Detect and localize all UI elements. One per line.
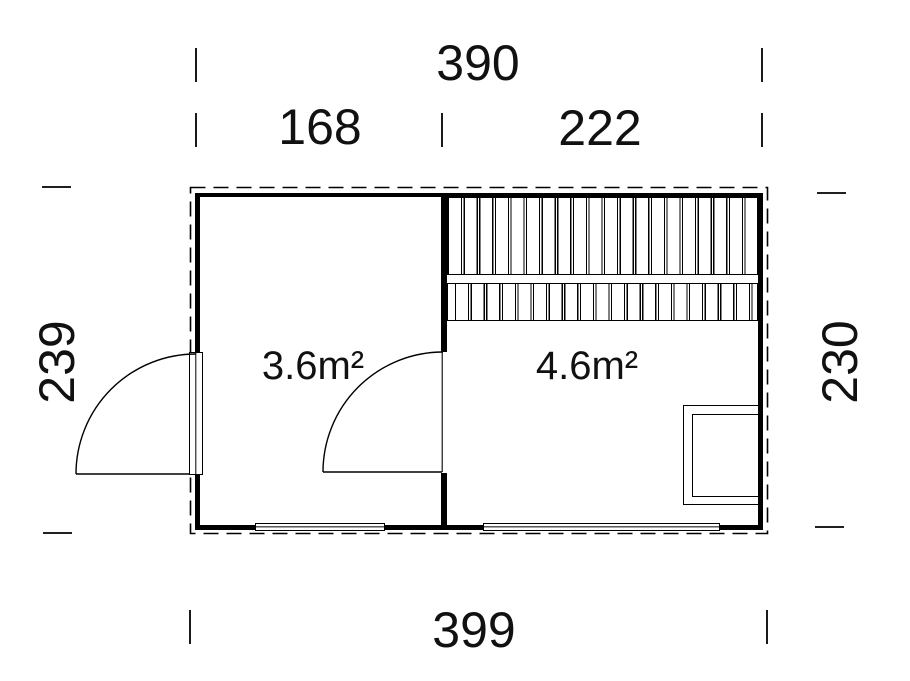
dim-side-right: 230 [815,320,865,403]
dim-top-total: 390 [436,38,519,88]
dim-bottom-total: 399 [432,605,515,655]
annotations-layer [0,0,910,681]
exterior-door-swing-arc [76,354,196,474]
dim-side-left: 239 [32,320,82,403]
dim-top-left-segment: 168 [278,102,361,152]
floor-plan: 390 168 222 239 230 399 3.6m² 4.6m² [0,0,910,681]
area-label-right-room: 4.6m² [536,346,638,386]
dim-top-right-segment: 222 [558,103,641,153]
area-label-left-room: 3.6m² [262,346,364,386]
